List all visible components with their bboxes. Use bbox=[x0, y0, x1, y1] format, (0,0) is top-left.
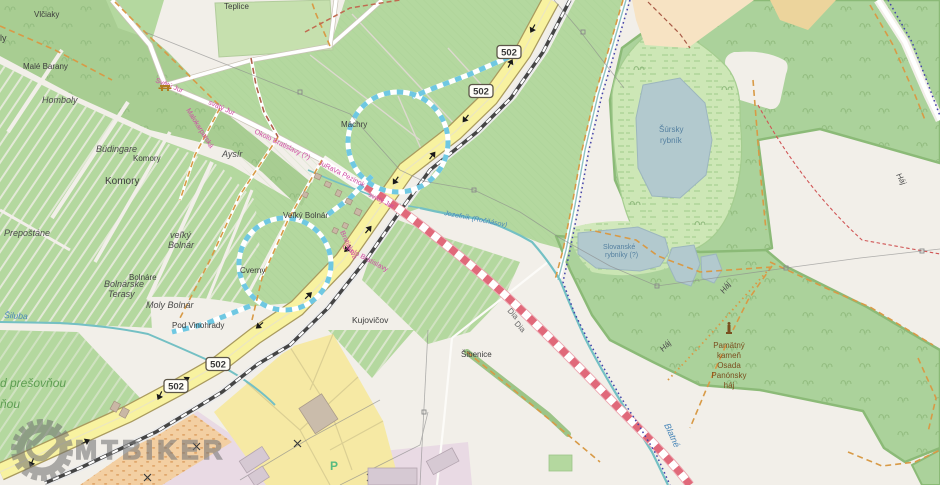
svg-text:ňou: ňou bbox=[0, 397, 20, 411]
svg-text:Teplice: Teplice bbox=[224, 2, 249, 11]
svg-text:rybníky (?): rybníky (?) bbox=[605, 252, 638, 259]
svg-text:Malé Barany: Malé Barany bbox=[23, 62, 68, 71]
svg-text:Šibenice: Šibenice bbox=[461, 350, 492, 359]
svg-text:Aysír: Aysír bbox=[221, 149, 243, 159]
svg-text:502: 502 bbox=[501, 48, 517, 59]
svg-text:Komory: Komory bbox=[105, 176, 139, 187]
svg-text:Homboly: Homboly bbox=[42, 95, 78, 105]
svg-text:502: 502 bbox=[210, 360, 226, 371]
svg-text:Šiluba: Šiluba bbox=[4, 310, 28, 321]
svg-text:kameň: kameň bbox=[717, 351, 741, 360]
svg-text:Pod Vinohrady: Pod Vinohrady bbox=[172, 321, 224, 330]
svg-text:Bolnárske: Bolnárske bbox=[104, 279, 144, 289]
svg-text:veľký: veľký bbox=[170, 230, 192, 240]
svg-text:Máchry: Máchry bbox=[341, 120, 367, 129]
svg-text:Slovanské: Slovanské bbox=[603, 244, 635, 251]
svg-text:Šúrsky: Šúrsky bbox=[659, 125, 683, 134]
svg-text:Panónsky: Panónsky bbox=[711, 371, 746, 380]
svg-text:háj: háj bbox=[724, 381, 735, 390]
svg-text:Veľký Bolnár: Veľký Bolnár bbox=[283, 211, 328, 220]
svg-text:Prepoštáne: Prepoštáne bbox=[4, 228, 50, 238]
svg-text:Osada: Osada bbox=[717, 361, 741, 370]
svg-text:Cverny: Cverny bbox=[240, 266, 265, 275]
svg-text:Pamätný: Pamätný bbox=[713, 341, 745, 350]
svg-text:ly: ly bbox=[0, 33, 7, 43]
svg-text:rybník: rybník bbox=[660, 136, 683, 145]
svg-text:Vlčiaky: Vlčiaky bbox=[34, 10, 59, 19]
svg-text:Komory: Komory bbox=[133, 154, 161, 163]
svg-text:MTBIKER: MTBIKER bbox=[75, 435, 227, 465]
svg-text:P: P bbox=[330, 459, 338, 473]
svg-text:Büdingare: Büdingare bbox=[96, 144, 137, 154]
svg-text:Moly Bolnár: Moly Bolnár bbox=[146, 300, 195, 310]
svg-text:d prešovňou: d prešovňou bbox=[0, 376, 66, 390]
svg-text:Bolnár: Bolnár bbox=[168, 240, 195, 250]
svg-text:502: 502 bbox=[473, 87, 489, 98]
svg-text:Kujovičov: Kujovičov bbox=[352, 315, 389, 325]
svg-text:Terasy: Terasy bbox=[108, 289, 135, 299]
svg-text:502: 502 bbox=[168, 382, 184, 393]
